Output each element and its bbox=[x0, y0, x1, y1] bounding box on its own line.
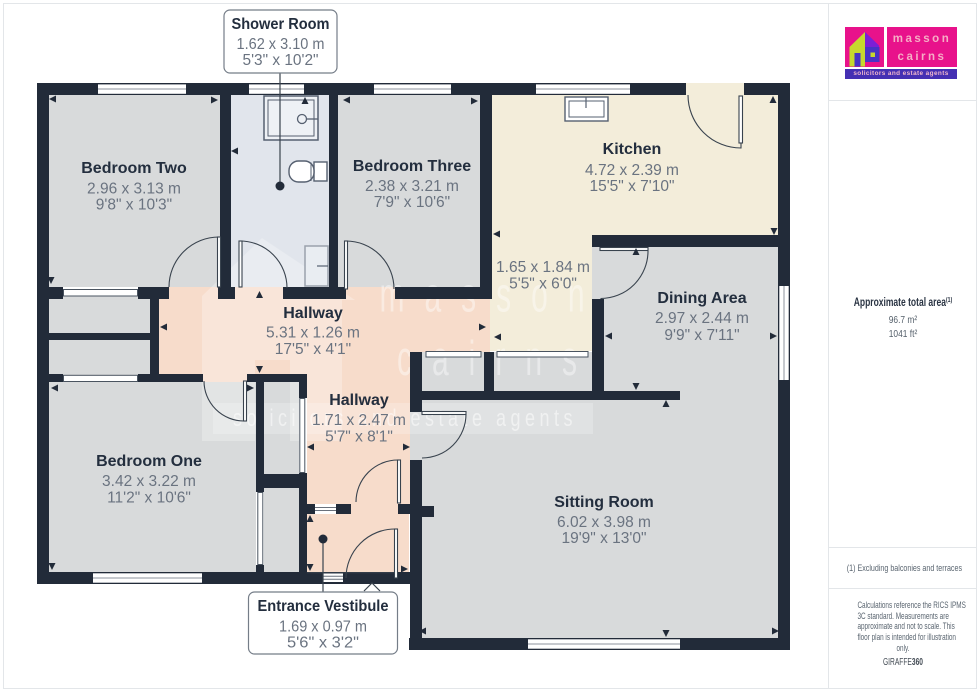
svg-text:15'5" x 7'10": 15'5" x 7'10" bbox=[589, 178, 674, 195]
svg-text:2.96 x 3.13 m: 2.96 x 3.13 m bbox=[87, 181, 181, 198]
svg-text:1.65 x 1.84 m: 1.65 x 1.84 m bbox=[496, 259, 590, 276]
svg-text:2.38 x 3.21 m: 2.38 x 3.21 m bbox=[365, 178, 459, 195]
svg-text:1.71 x 2.47 m: 1.71 x 2.47 m bbox=[312, 412, 406, 429]
svg-text:Hallway: Hallway bbox=[329, 392, 389, 409]
svg-text:Shower Room: Shower Room bbox=[232, 16, 330, 33]
svg-text:5'3" x 10'2": 5'3" x 10'2" bbox=[243, 52, 319, 69]
svg-text:3.42 x 3.22 m: 3.42 x 3.22 m bbox=[102, 473, 196, 490]
svg-text:Dining Area: Dining Area bbox=[657, 290, 746, 307]
svg-text:Entrance Vestibule: Entrance Vestibule bbox=[258, 598, 389, 615]
svg-text:11'2" x 10'6": 11'2" x 10'6" bbox=[107, 490, 191, 507]
svg-text:9'8" x 10'3": 9'8" x 10'3" bbox=[96, 197, 172, 214]
svg-text:5'5" x 6'0": 5'5" x 6'0" bbox=[509, 276, 577, 293]
svg-text:4.72 x 2.39 m: 4.72 x 2.39 m bbox=[585, 162, 679, 179]
svg-text:6.02 x 3.98 m: 6.02 x 3.98 m bbox=[557, 514, 651, 531]
svg-text:5'6" x 3'2": 5'6" x 3'2" bbox=[287, 635, 359, 652]
svg-text:1.62 x 3.10 m: 1.62 x 3.10 m bbox=[237, 36, 325, 53]
svg-text:Bedroom Two: Bedroom Two bbox=[81, 160, 187, 177]
svg-text:Bedroom Three: Bedroom Three bbox=[353, 158, 471, 175]
svg-text:7'9" x 10'6": 7'9" x 10'6" bbox=[374, 194, 450, 211]
svg-text:1.69 x 0.97 m: 1.69 x 0.97 m bbox=[279, 619, 367, 636]
svg-text:Sitting Room: Sitting Room bbox=[554, 494, 654, 511]
svg-text:Bedroom One: Bedroom One bbox=[96, 453, 202, 470]
svg-text:Kitchen: Kitchen bbox=[603, 141, 662, 158]
svg-text:5.31 x 1.26 m: 5.31 x 1.26 m bbox=[266, 325, 360, 342]
svg-text:17'5" x 4'1": 17'5" x 4'1" bbox=[275, 341, 351, 358]
svg-text:9'9" x 7'11": 9'9" x 7'11" bbox=[664, 327, 739, 344]
svg-text:5'7" x 8'1": 5'7" x 8'1" bbox=[325, 429, 393, 446]
svg-text:19'9" x 13'0": 19'9" x 13'0" bbox=[561, 530, 646, 547]
svg-text:2.97 x 2.44 m: 2.97 x 2.44 m bbox=[655, 310, 749, 327]
svg-text:Hallway: Hallway bbox=[283, 305, 343, 322]
svg-text:cairns: cairns bbox=[397, 330, 597, 386]
